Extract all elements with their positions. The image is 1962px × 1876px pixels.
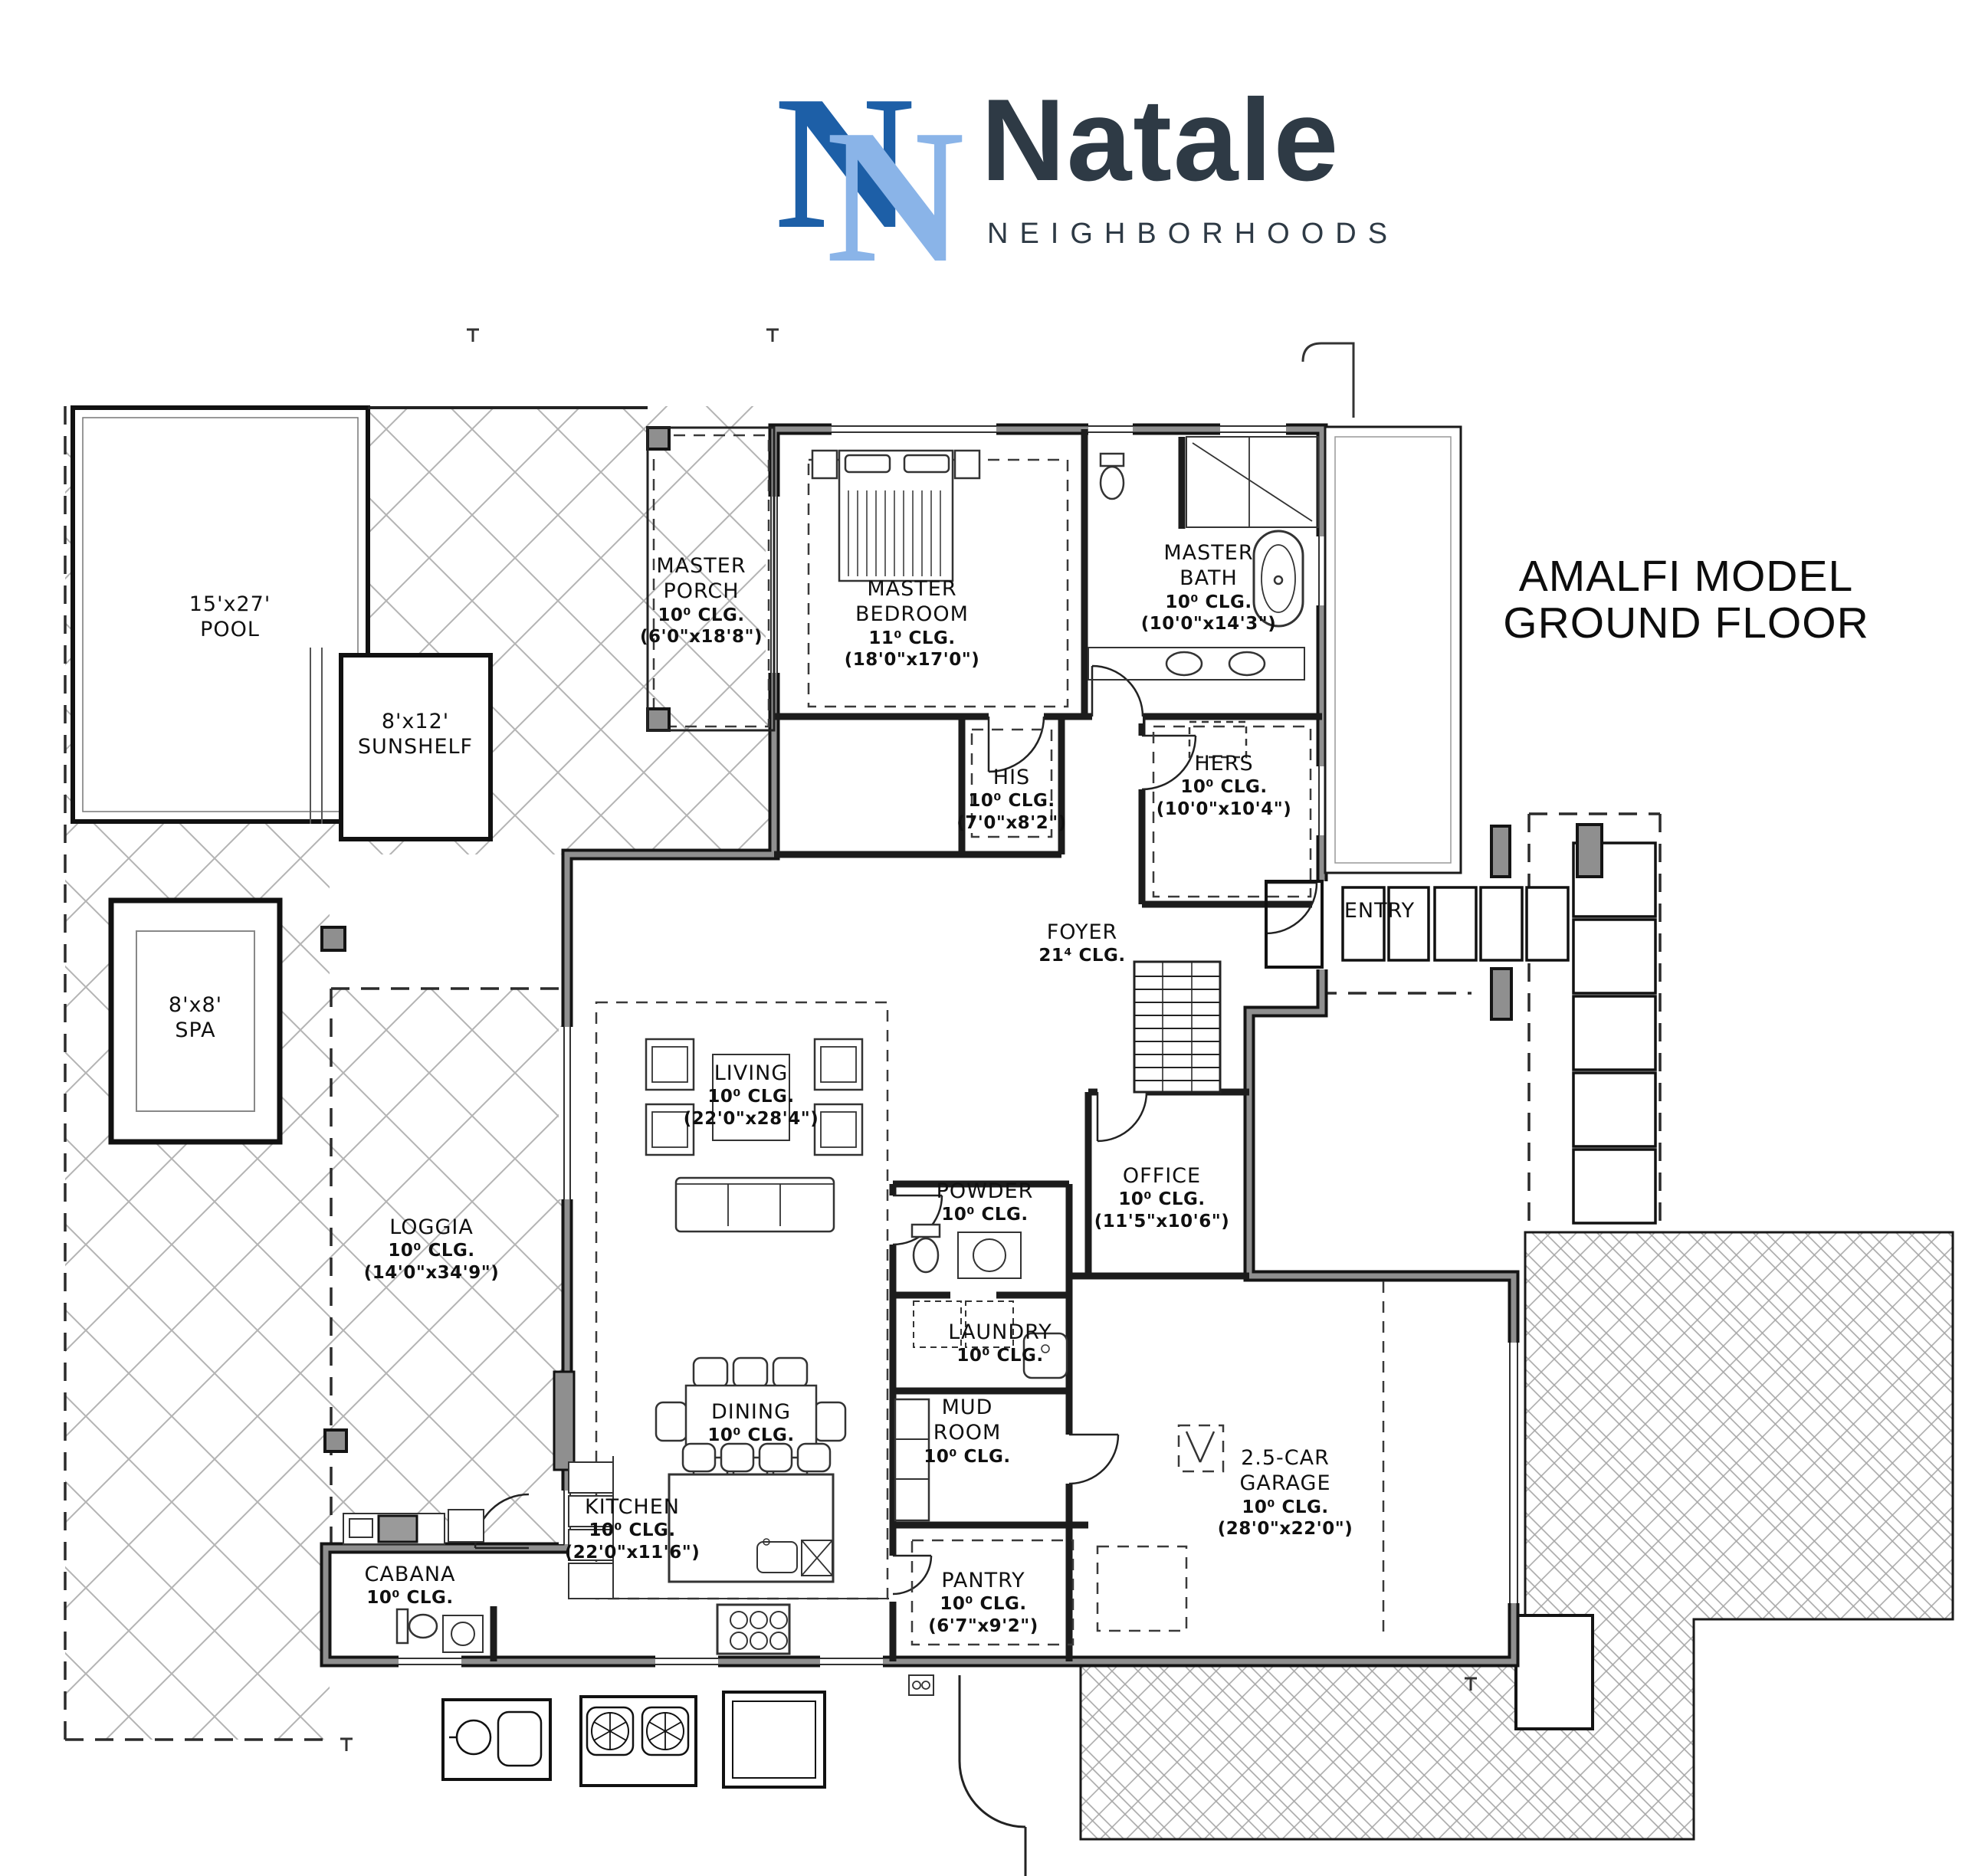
- room-label-garage: 2.5-CAR GARAGE 10⁰ CLG. (28'0"x22'0"): [1218, 1445, 1353, 1540]
- room-label-entry: ENTRY: [1344, 898, 1415, 923]
- room-label-powder: POWDER 10⁰ CLG.: [937, 1179, 1034, 1226]
- room-label-master-bath: MASTER BATH 10⁰ CLG. (10'0"x14'3"): [1141, 540, 1276, 635]
- room-label-sunshelf: 8'x12' SUNSHELF: [358, 709, 473, 760]
- room-label-living: LIVING 10⁰ CLG. (22'0"x28'4"): [684, 1061, 819, 1130]
- pool-equipment: [443, 1692, 825, 1787]
- plan-title-line2: GROUND FLOOR: [1503, 600, 1869, 647]
- room-label-spa: 8'x8' SPA: [169, 992, 222, 1044]
- slider-panel: [554, 1372, 574, 1470]
- floorplan-page: N N Natale NEIGHBORHOODS AMALFI MODEL GR…: [0, 0, 1962, 1876]
- room-label-hers: HERS 10⁰ CLG. (10'0"x10'4"): [1157, 751, 1291, 821]
- brand-name: Natale: [981, 74, 1340, 208]
- room-label-pool: 15'x27' POOL: [189, 592, 271, 643]
- room-label-mud-room: MUD ROOM 10⁰ CLG.: [924, 1395, 1010, 1468]
- plan-title: AMALFI MODEL GROUND FLOOR: [1503, 553, 1869, 647]
- room-label-master-porch: MASTER PORCH 10⁰ CLG. (6'0"x18'8"): [640, 553, 763, 648]
- room-label-his: HIS 10⁰ CLG. (7'0"x8'2"): [956, 765, 1066, 835]
- plan-title-line1: AMALFI MODEL: [1503, 553, 1869, 600]
- logo-monogram-light: N: [826, 101, 965, 293]
- brand-logo: N N Natale NEIGHBORHOODS: [776, 67, 1358, 290]
- room-label-laundry: LAUNDRY 10⁰ CLG.: [948, 1320, 1052, 1367]
- room-label-pantry: PANTRY 10⁰ CLG. (6'7"x9'2"): [928, 1568, 1038, 1638]
- brand-subtitle: NEIGHBORHOODS: [987, 218, 1399, 251]
- stairs: [1134, 962, 1220, 1092]
- room-label-cabana: CABANA 10⁰ CLG.: [365, 1562, 456, 1609]
- room-label-master-bedroom: MASTER BEDROOM 11⁰ CLG. (18'0"x17'0"): [845, 576, 979, 671]
- garage-stoop: [1516, 1615, 1593, 1729]
- room-label-dining: DINING 10⁰ CLG.: [707, 1399, 794, 1447]
- room-label-office: OFFICE 10⁰ CLG. (11'5"x10'6"): [1094, 1163, 1229, 1233]
- room-label-foyer: FOYER 21⁴ CLG.: [1038, 920, 1125, 967]
- room-label-loggia: LOGGIA 10⁰ CLG. (14'0"x34'9"): [364, 1215, 499, 1284]
- room-label-kitchen: KITCHEN 10⁰ CLG. (22'0"x11'6"): [565, 1494, 700, 1564]
